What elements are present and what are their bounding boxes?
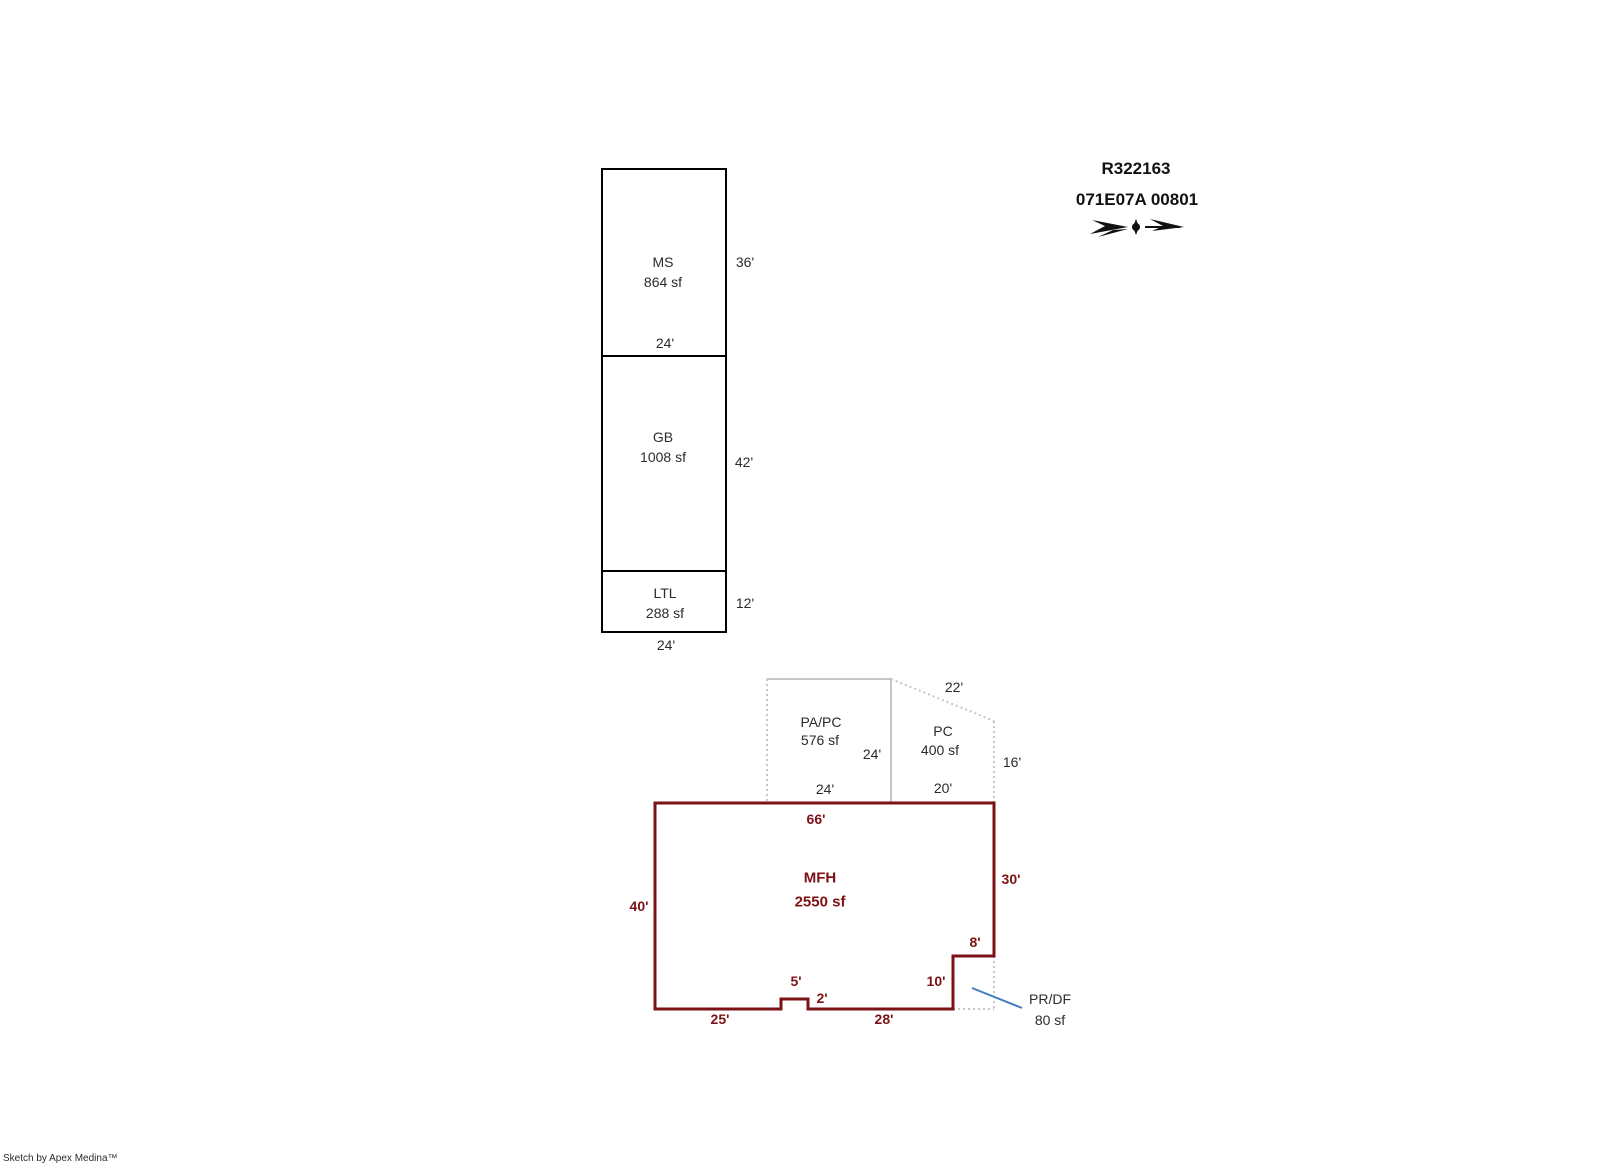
mfh-left-dim: 40' — [630, 899, 649, 913]
ms-width-dim: 24' — [656, 336, 674, 350]
gb-height-dim: 42' — [735, 455, 753, 469]
ltl-outline — [602, 571, 726, 632]
pc-name: PC — [933, 724, 952, 738]
property-sketch-page: R322163 071E07A 00801 MS 864 sf 24' 36' … — [0, 0, 1600, 1174]
ms-area: 864 sf — [644, 275, 682, 289]
prdf-area: 80 sf — [1035, 1013, 1065, 1027]
pc-area: 400 sf — [921, 743, 959, 757]
pc-slant-edge — [891, 679, 994, 721]
record-id: R322163 — [1101, 159, 1170, 179]
pc-width-dim: 20' — [934, 781, 952, 795]
mfh-notch-width-dim: 8' — [969, 935, 980, 949]
mfh-bump-height-dim: 2' — [816, 991, 827, 1005]
ltl-width-dim: 24' — [657, 638, 675, 652]
sketch-drawing — [0, 0, 1600, 1174]
papc-area: 576 sf — [801, 733, 839, 747]
ms-gb-ltl-outline — [602, 169, 726, 632]
mfh-right-dim: 30' — [1002, 872, 1021, 886]
map-taxlot: 071E07A 00801 — [1076, 190, 1198, 210]
ltl-name: LTL — [653, 586, 676, 600]
ltl-height-dim: 12' — [736, 596, 754, 610]
papc-width-dim: 24' — [816, 782, 834, 796]
sketch-credit: Sketch by Apex Medina™ — [3, 1153, 118, 1164]
mfh-name: MFH — [804, 871, 837, 886]
ltl-area: 288 sf — [646, 606, 684, 620]
prdf-name: PR/DF — [1029, 992, 1071, 1006]
pc-height-dim: 16' — [1003, 755, 1021, 769]
papc-height-dim: 24' — [863, 747, 881, 761]
pc-slant-dim: 22' — [945, 680, 963, 694]
mfh-bump-width-dim: 5' — [790, 974, 801, 988]
ms-height-dim: 36' — [736, 255, 754, 269]
gb-area: 1008 sf — [640, 450, 686, 464]
prdf-pointer-line — [972, 988, 1022, 1008]
mfh-area: 2550 sf — [795, 895, 846, 910]
papc-name: PA/PC — [801, 715, 842, 729]
mfh-notch-height-dim: 10' — [927, 974, 946, 988]
gb-name: GB — [653, 430, 673, 444]
mfh-bottom-right-dim: 28' — [875, 1012, 894, 1026]
mfh-top-dim: 66' — [807, 812, 826, 826]
mfh-bottom-left-dim: 25' — [711, 1012, 730, 1026]
north-arrow-icon — [1090, 219, 1184, 237]
ms-name: MS — [653, 255, 674, 269]
